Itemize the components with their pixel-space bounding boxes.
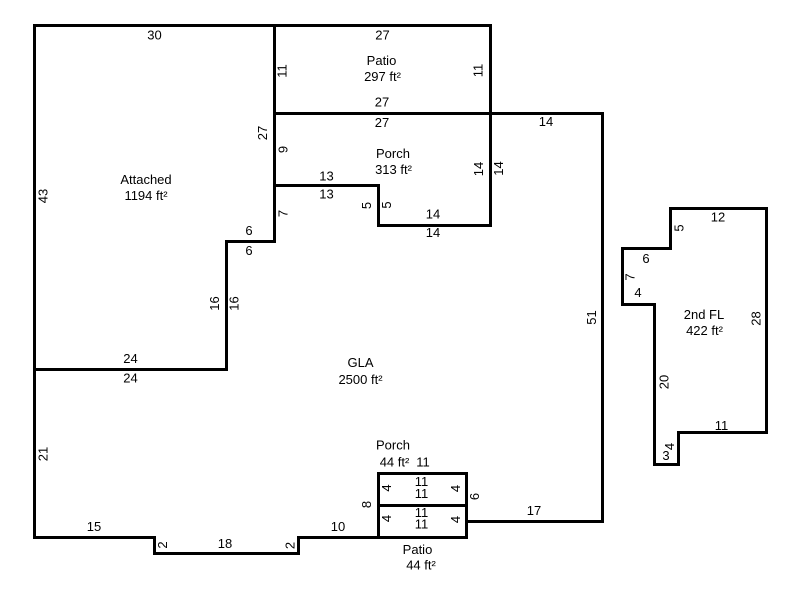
svg-text:6: 6 — [642, 251, 649, 266]
svg-text:9: 9 — [276, 146, 291, 153]
svg-text:28: 28 — [749, 311, 764, 325]
svg-text:5: 5 — [672, 224, 687, 231]
svg-text:14: 14 — [426, 207, 440, 222]
svg-text:27: 27 — [375, 95, 389, 110]
svg-text:5: 5 — [359, 202, 374, 209]
svg-text:14: 14 — [471, 162, 486, 176]
svg-text:11: 11 — [715, 418, 729, 433]
svg-text:2nd FL: 2nd FL — [684, 307, 724, 322]
svg-text:Patio: Patio — [403, 542, 433, 557]
svg-text:4: 4 — [379, 484, 394, 491]
svg-text:2: 2 — [283, 542, 298, 549]
svg-text:2500 ft²: 2500 ft² — [338, 372, 383, 387]
svg-text:11: 11 — [471, 64, 486, 78]
svg-text:6: 6 — [245, 243, 252, 258]
svg-text:14: 14 — [539, 114, 553, 129]
svg-text:11: 11 — [416, 455, 430, 470]
svg-text:6: 6 — [245, 223, 252, 238]
svg-text:8: 8 — [359, 501, 374, 508]
svg-text:Porch: Porch — [376, 146, 410, 161]
svg-text:Patio: Patio — [367, 53, 397, 68]
svg-text:43: 43 — [36, 189, 51, 203]
svg-text:16: 16 — [207, 296, 222, 310]
svg-text:Porch: Porch — [376, 438, 410, 453]
svg-text:Attached: Attached — [120, 172, 171, 187]
svg-text:11: 11 — [275, 64, 290, 78]
svg-text:27: 27 — [375, 28, 389, 43]
svg-text:13: 13 — [319, 169, 333, 184]
svg-text:11: 11 — [415, 517, 429, 532]
svg-text:4: 4 — [448, 485, 463, 492]
svg-text:14: 14 — [426, 225, 440, 240]
svg-text:422 ft²: 422 ft² — [686, 323, 724, 338]
svg-text:11: 11 — [415, 486, 429, 501]
svg-text:5: 5 — [379, 201, 394, 208]
svg-text:15: 15 — [87, 519, 101, 534]
svg-text:4: 4 — [448, 516, 463, 523]
svg-text:17: 17 — [527, 503, 541, 518]
svg-text:7: 7 — [276, 210, 291, 217]
svg-text:4: 4 — [379, 515, 394, 522]
svg-text:27: 27 — [255, 126, 270, 140]
svg-text:18: 18 — [218, 536, 232, 551]
svg-text:27: 27 — [375, 115, 389, 130]
svg-text:10: 10 — [331, 519, 345, 534]
svg-text:12: 12 — [711, 210, 725, 225]
svg-text:GLA: GLA — [347, 355, 373, 370]
svg-text:1194 ft²: 1194 ft² — [124, 188, 168, 203]
svg-text:313 ft²: 313 ft² — [375, 162, 413, 177]
svg-text:21: 21 — [36, 447, 51, 461]
svg-text:16: 16 — [227, 296, 242, 310]
svg-text:3: 3 — [662, 448, 669, 463]
svg-text:4: 4 — [634, 285, 641, 300]
svg-text:297 ft²: 297 ft² — [364, 69, 402, 84]
svg-text:7: 7 — [623, 273, 638, 280]
svg-text:44 ft²: 44 ft² — [380, 455, 410, 470]
svg-text:13: 13 — [319, 187, 333, 202]
svg-text:20: 20 — [657, 375, 672, 389]
svg-text:44 ft²: 44 ft² — [406, 558, 436, 573]
svg-text:30: 30 — [147, 28, 161, 43]
svg-text:24: 24 — [123, 351, 137, 366]
svg-text:24: 24 — [123, 371, 137, 386]
svg-text:6: 6 — [467, 493, 482, 500]
svg-text:51: 51 — [584, 310, 599, 324]
svg-text:2: 2 — [155, 541, 170, 548]
svg-text:14: 14 — [491, 161, 506, 175]
